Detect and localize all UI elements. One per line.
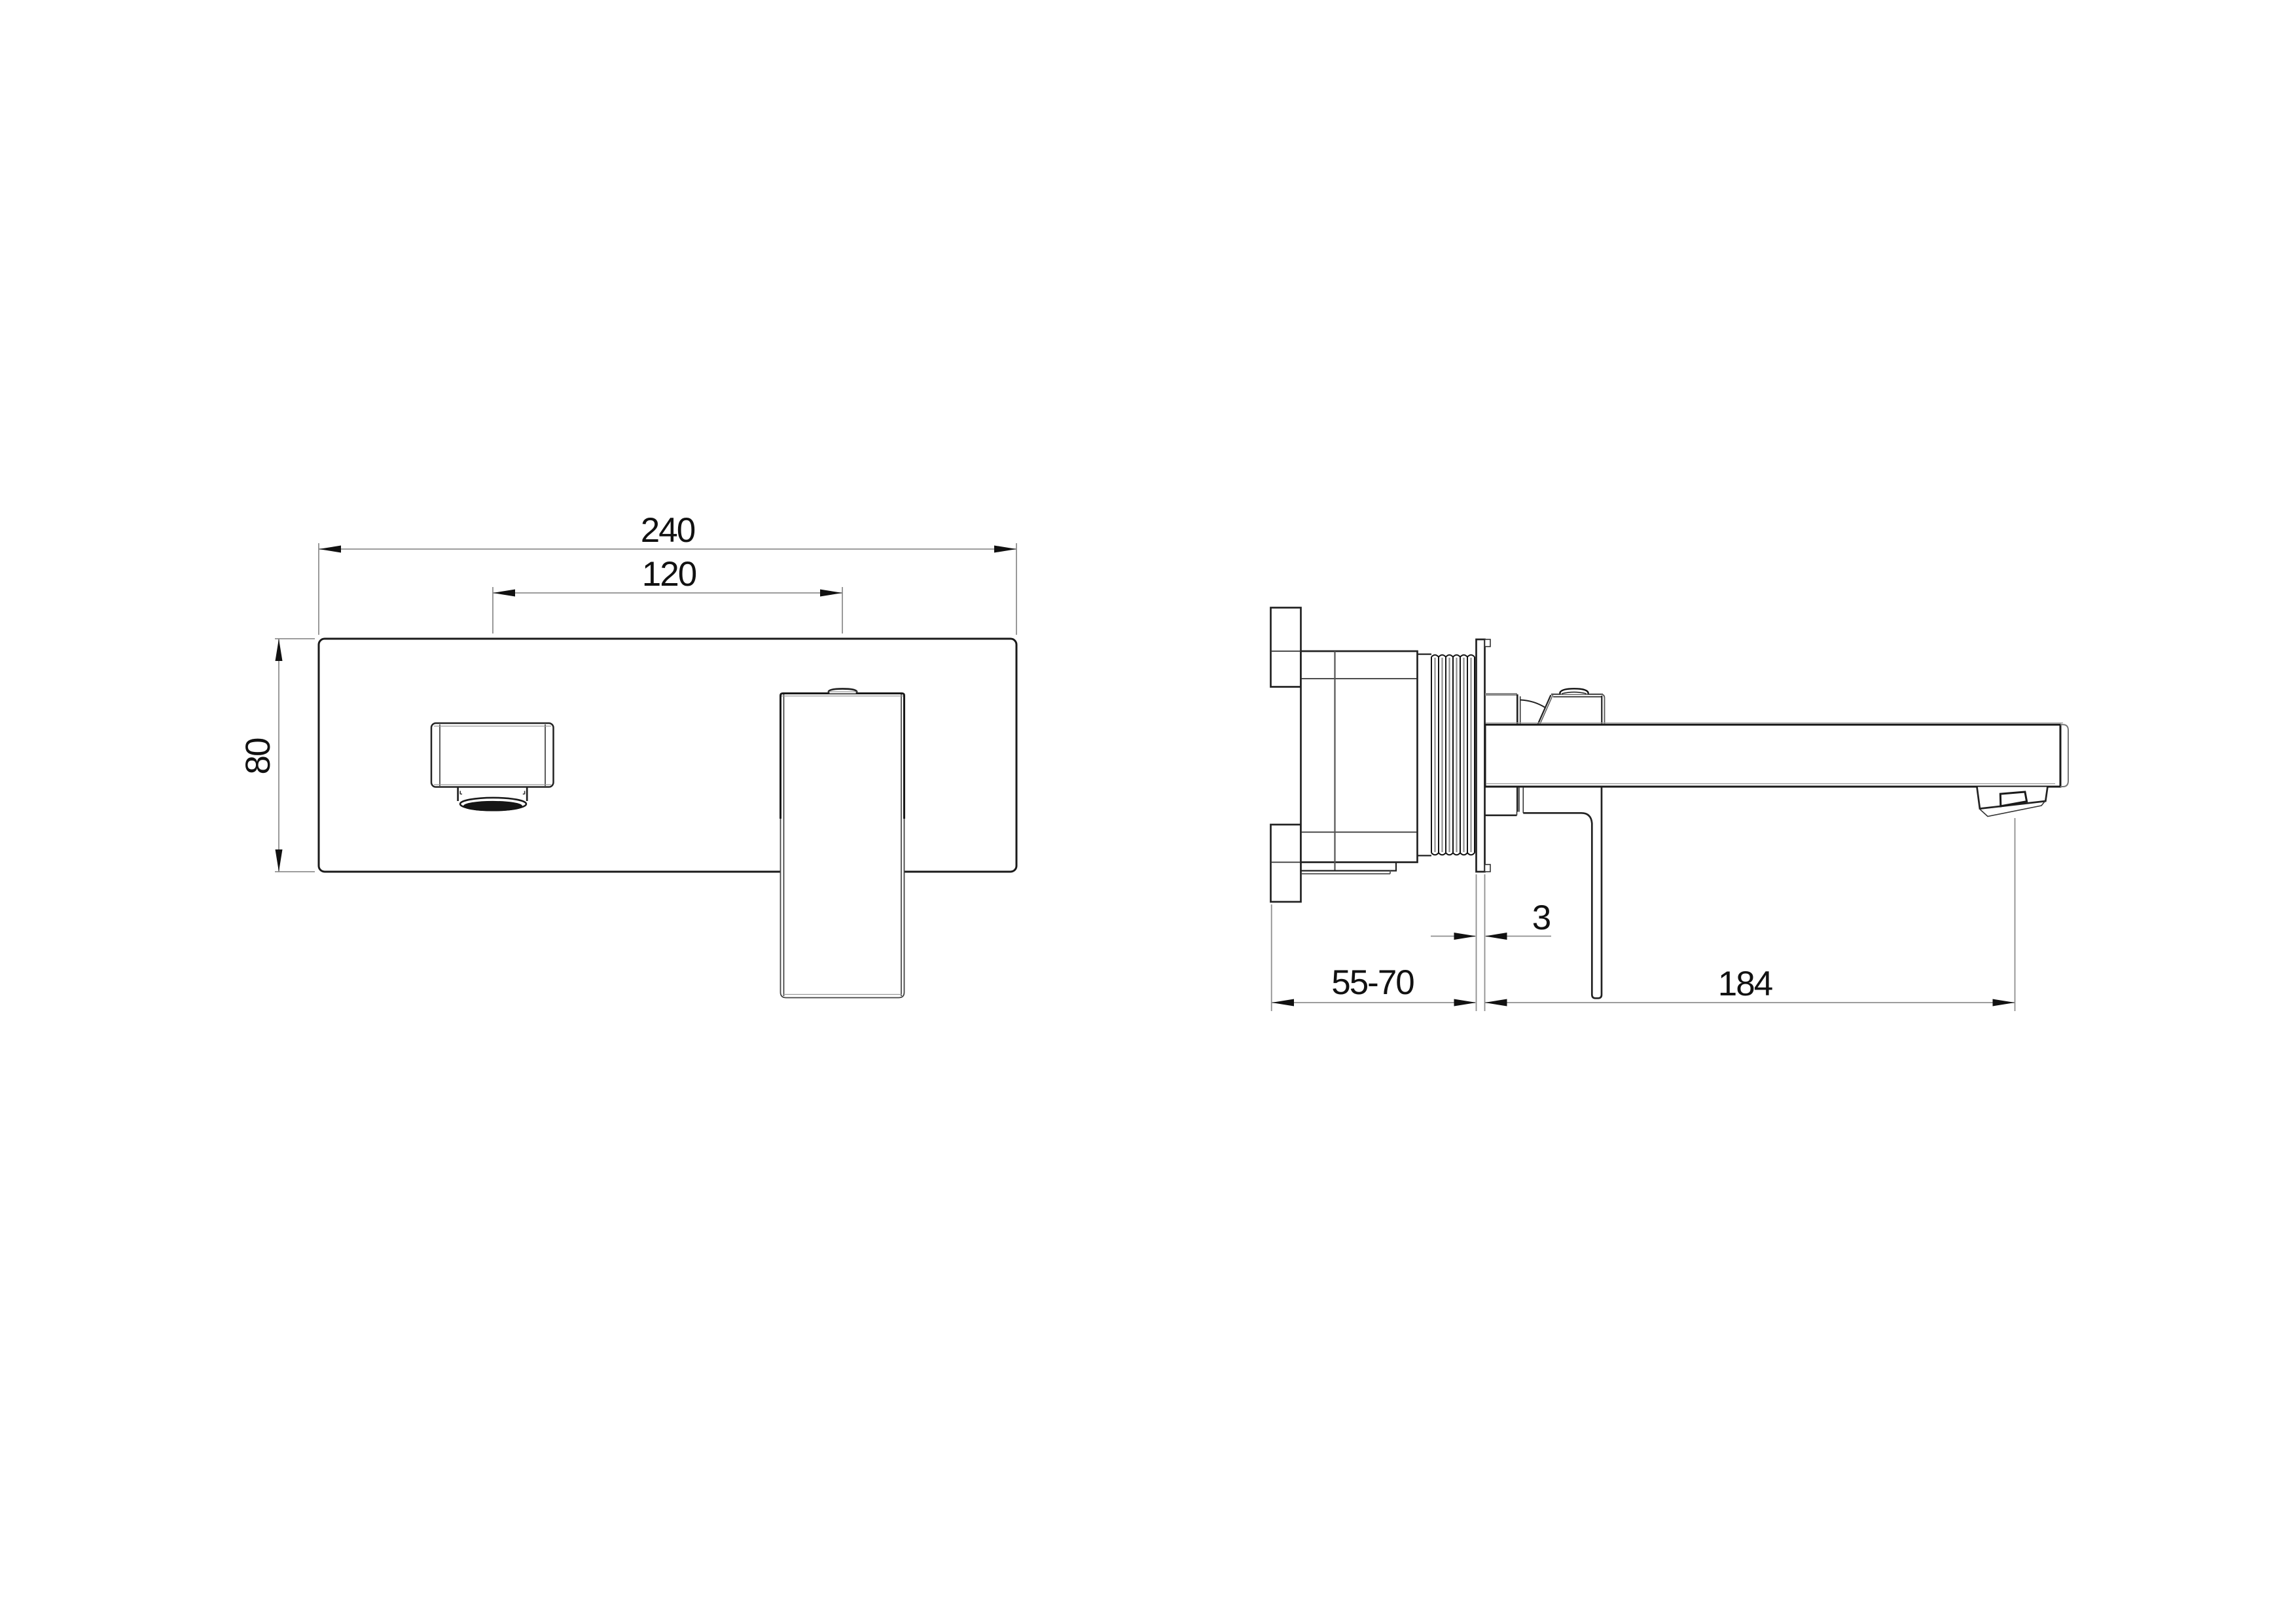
svg-text:55-70: 55-70 <box>1331 963 1414 1002</box>
svg-text:80: 80 <box>239 738 278 774</box>
svg-text:184: 184 <box>1718 965 1772 1003</box>
svg-text:120: 120 <box>642 555 696 594</box>
svg-text:240: 240 <box>641 511 695 550</box>
svg-text:3: 3 <box>1532 899 1551 937</box>
